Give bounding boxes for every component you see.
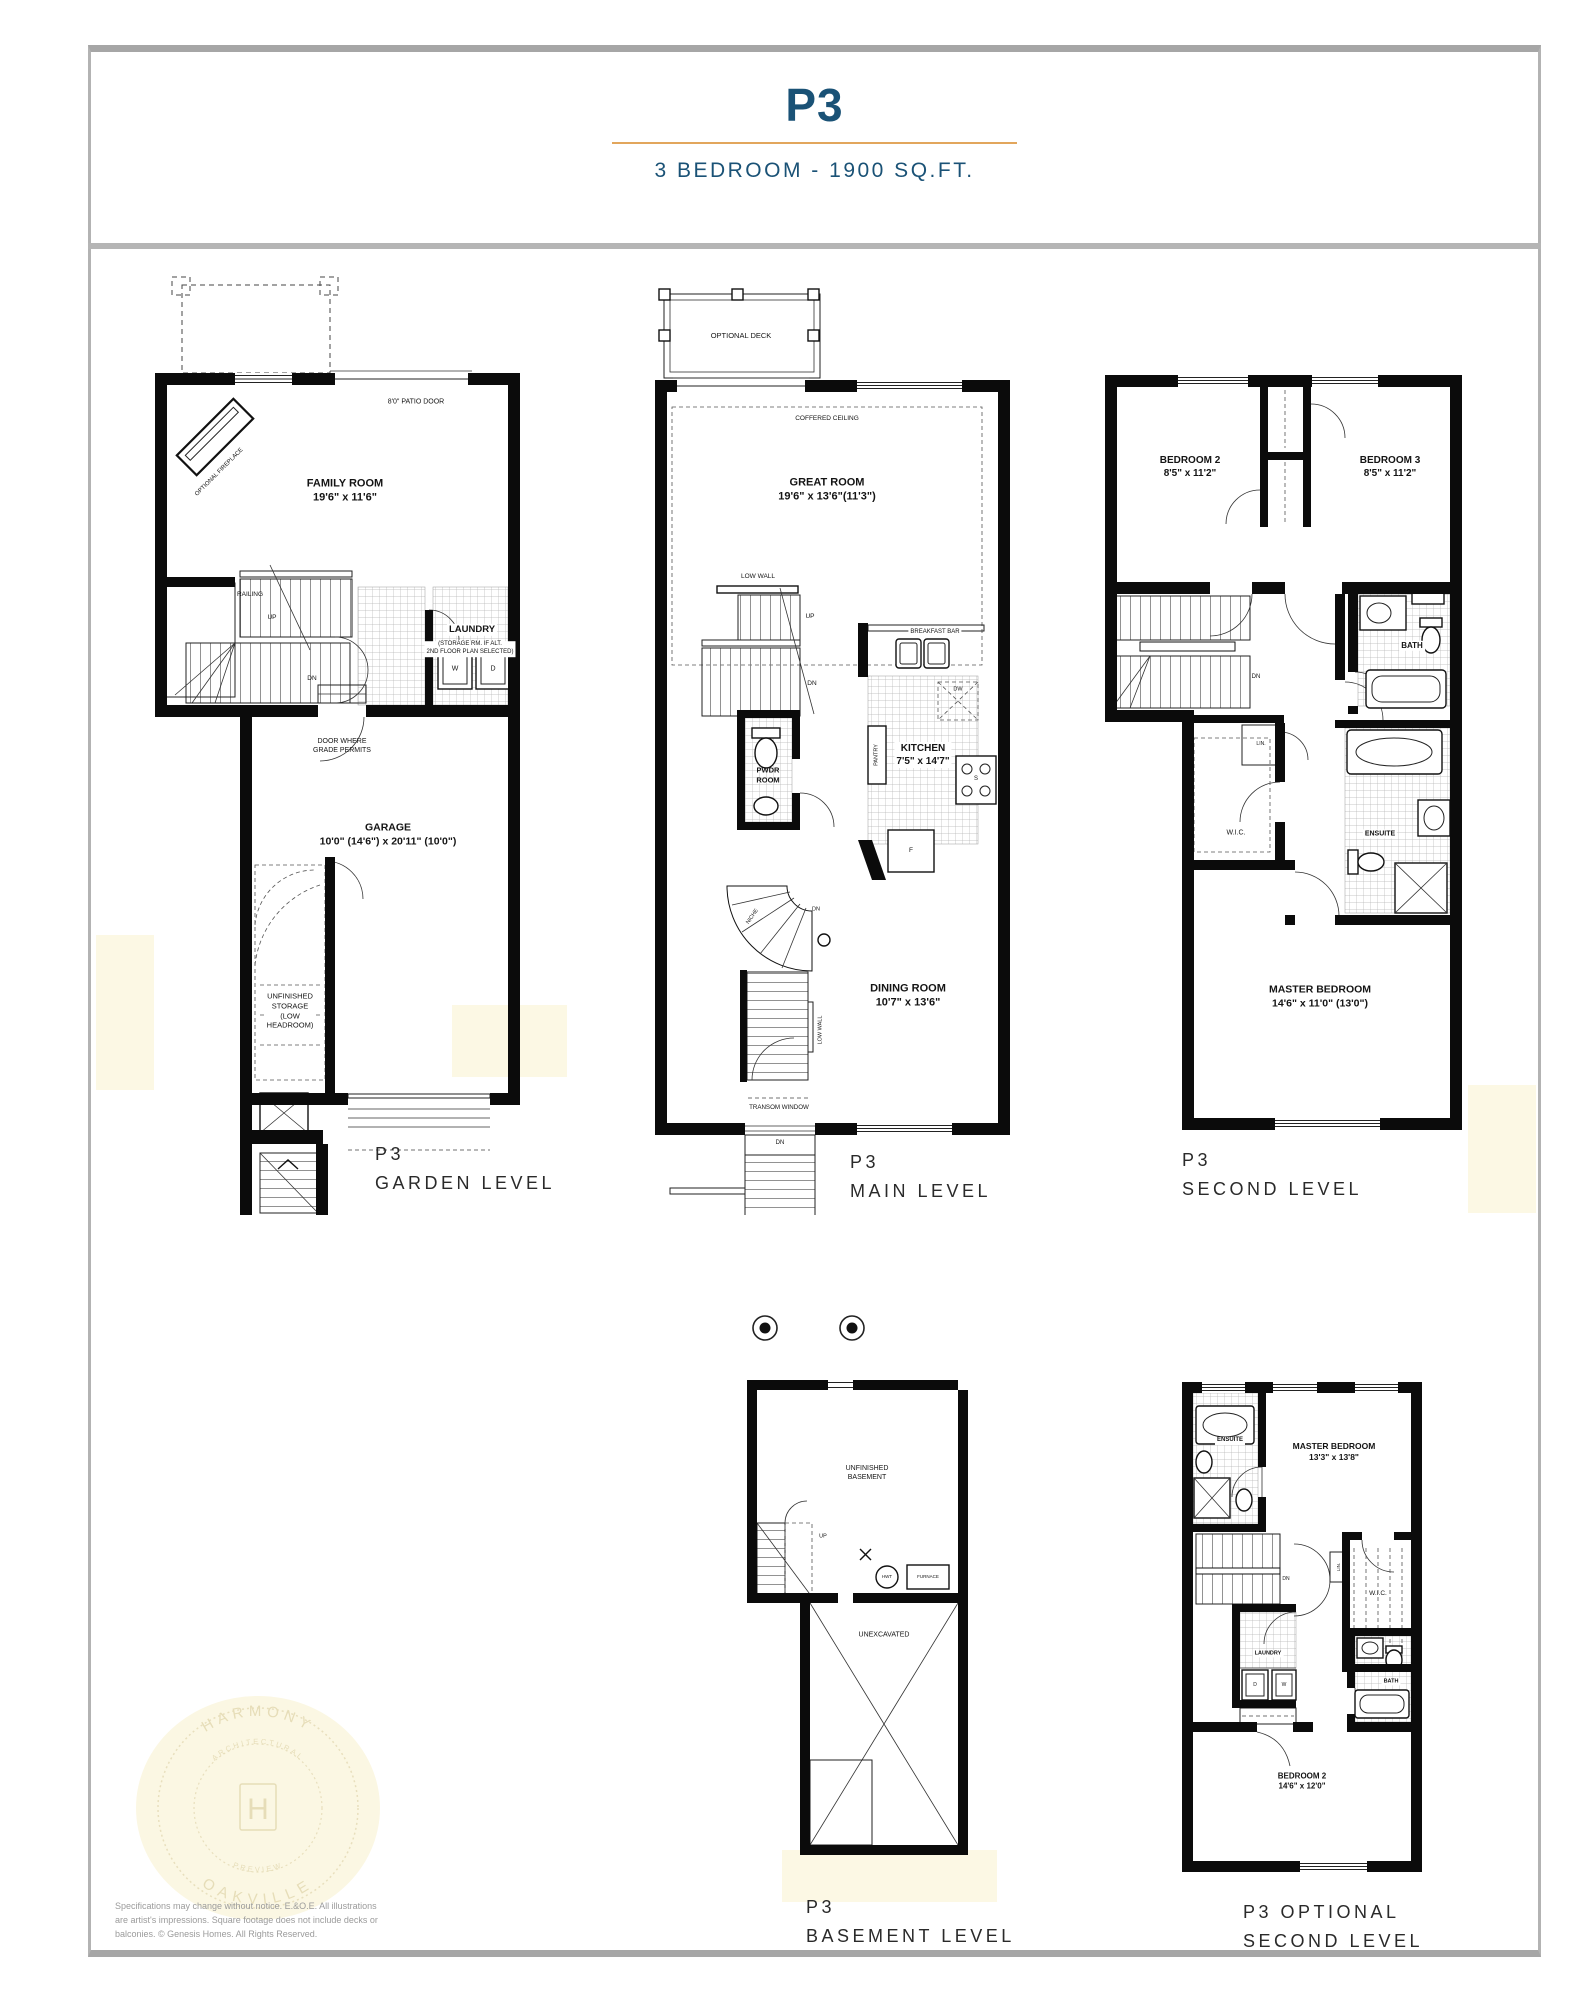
down-label: DN — [307, 675, 316, 683]
stairs-icon — [1112, 596, 1250, 708]
ensuite-label: ENSUITE — [1215, 1437, 1245, 1445]
coffered-ceiling-outline — [672, 407, 982, 665]
transom-window-label: TRANSOM WINDOW — [747, 1104, 811, 1112]
down-label: DN — [1282, 1576, 1289, 1583]
page-title: P3 — [91, 82, 1538, 128]
family-room-label: FAMILY ROOM 19'6" x 11'6" — [307, 477, 383, 506]
master-bedroom-label: MASTER BEDROOM 13'3" x 13'8" — [1293, 1441, 1376, 1463]
stairs-icon — [1196, 1534, 1280, 1604]
entry-stairs-icon — [670, 1135, 815, 1215]
walls — [747, 1380, 968, 1855]
dryer-label: D — [1253, 1682, 1257, 1689]
accent-rule — [612, 142, 1017, 144]
watermark-monogram: H — [247, 1793, 269, 1826]
curved-stairs-icon — [727, 886, 830, 971]
basement-level-plan: UNFINISHED BASEMENT UP HWT FURNACE UNEXC… — [745, 1305, 980, 1880]
laundry-note-label: (STORAGE RM. IF ALT. 2ND FLOOR PLAN SELE… — [424, 641, 515, 657]
floor-plan-sheet: { "header": { "plan_code": "P3", "subtit… — [0, 0, 1581, 1999]
up-label: UP — [805, 613, 814, 621]
exterior-stairs-icon — [260, 1153, 318, 1213]
linen-label: LIN. — [1336, 1563, 1342, 1571]
harmony-watermark-seal: HARMONY ARCHITECTURAL PREVIEW OAKVILLE H — [128, 1678, 388, 1938]
garage-label: GARAGE 10'0" (14'6") x 20'11" (10'0") — [320, 821, 457, 848]
second-level-drawing — [1090, 370, 1490, 1215]
laundry-label: LAUNDRY — [1253, 1650, 1284, 1657]
powder-room-label: PWDR ROOM — [756, 765, 779, 785]
basement-level-caption: P3 BASEMENT LEVEL — [806, 1893, 1015, 1951]
linen-label: LIN. — [1256, 741, 1265, 748]
up-label: UP — [819, 1533, 827, 1540]
down-label: DN — [812, 906, 820, 913]
door-grade-label: DOOR WHERE GRADE PERMITS — [313, 737, 371, 755]
utilities-icon — [860, 1549, 949, 1589]
stove-label: S — [974, 776, 978, 784]
bedroom2-label: BEDROOM 2 14'6" x 12'0" — [1278, 1772, 1326, 1793]
railing-label: RAILING — [237, 591, 263, 599]
bedroom2-label: BEDROOM 2 8'5" x 11'2" — [1160, 454, 1221, 480]
master-bedroom-label: MASTER BEDROOM 14'6" x 11'0" (13'0") — [1269, 983, 1371, 1010]
storage-stairs-outline — [255, 865, 325, 1080]
sheet-frame: P3 3 BEDROOM - 1900 SQ.FT. — [88, 45, 1541, 1957]
pantry-label: PANTRY — [873, 744, 880, 766]
wic-label: W.I.C. — [1226, 828, 1245, 837]
unfinished-basement-label: UNFINISHED BASEMENT — [846, 1464, 889, 1482]
up-label: UP — [267, 614, 276, 622]
low-wall-label: LOW WALL — [741, 573, 775, 581]
bath-label: BATH — [1399, 641, 1425, 651]
bath-label: BATH — [1382, 1678, 1401, 1685]
disclaimer-text: Specifications may change without notice… — [115, 1900, 415, 1942]
storage-label: UNFINISHED STORAGE (LOW HEADROOM) — [265, 992, 316, 1031]
sheet-header: P3 3 BEDROOM - 1900 SQ.FT. — [91, 82, 1538, 183]
main-level-caption: P3 MAIN LEVEL — [850, 1148, 991, 1206]
dishwasher-label: DW — [953, 686, 962, 693]
dryer-label: D — [490, 664, 495, 673]
down-label: DN — [1252, 674, 1261, 682]
stairs-icon — [757, 1501, 812, 1597]
basement-level-drawing — [745, 1305, 980, 1880]
furnace-label: FURNACE — [917, 1574, 939, 1580]
down-label: DN — [807, 680, 816, 688]
second-level-plan: BEDROOM 2 8'5" x 11'2" BEDROOM 3 8'5" x … — [1090, 370, 1490, 1215]
low-wall-label: LOW WALL — [817, 1016, 824, 1045]
ensuite-label: ENSUITE — [1363, 829, 1397, 838]
optional-second-level-caption: P3 OPTIONAL SECOND LEVEL — [1243, 1898, 1423, 1956]
garden-level-caption: P3 GARDEN LEVEL — [375, 1140, 555, 1198]
kitchen-label: KITCHEN 7'5" x 14'7" — [894, 742, 951, 768]
patio-door-label: 8'0" PATIO DOOR — [388, 397, 444, 406]
down-label: DN — [776, 1140, 785, 1148]
deck-footprint-outline — [172, 277, 338, 373]
washer-label: W — [1282, 1682, 1287, 1689]
unexcavated-label: UNEXCAVATED — [857, 1630, 912, 1639]
second-level-caption: P3 SECOND LEVEL — [1182, 1146, 1362, 1204]
optional-deck-label: OPTIONAL DECK — [711, 331, 772, 341]
fridge-label: F — [909, 847, 913, 855]
laundry-appliances-icon — [1240, 1668, 1296, 1724]
main-level-plan: OPTIONAL DECK COFFERED CEILING GREAT ROO… — [640, 280, 1060, 1215]
optional-second-level-plan: ENSUITE MASTER BEDROOM 13'3" x 13'8" DN … — [1182, 1382, 1422, 1877]
wic-label: W.I.C. — [1369, 1590, 1387, 1598]
stairs-icon — [702, 588, 814, 716]
dining-room-label: DINING ROOM 10'7" x 13'6" — [870, 982, 946, 1011]
garden-level-plan: OPTIONAL FIREPLACE 8'0" PATIO DOOR FAMIL… — [120, 225, 570, 1215]
hot-water-tank-label: HWT — [882, 1574, 892, 1580]
fireplace-icon — [177, 399, 253, 475]
laundry-label: LAUNDRY — [447, 624, 497, 636]
bullet-markers — [753, 1316, 864, 1340]
bedroom3-label: BEDROOM 3 8'5" x 11'2" — [1360, 454, 1421, 480]
breakfast-bar-label: BREAKFAST BAR — [908, 629, 961, 637]
washer-label: W — [452, 664, 459, 673]
garden-level-drawing — [120, 225, 570, 1215]
great-room-label: GREAT ROOM 19'6" x 13'6"(11'3") — [778, 476, 876, 505]
page-subtitle: 3 BEDROOM - 1900 SQ.FT. — [91, 159, 1538, 183]
coffered-ceiling-label: COFFERED CEILING — [793, 415, 861, 423]
